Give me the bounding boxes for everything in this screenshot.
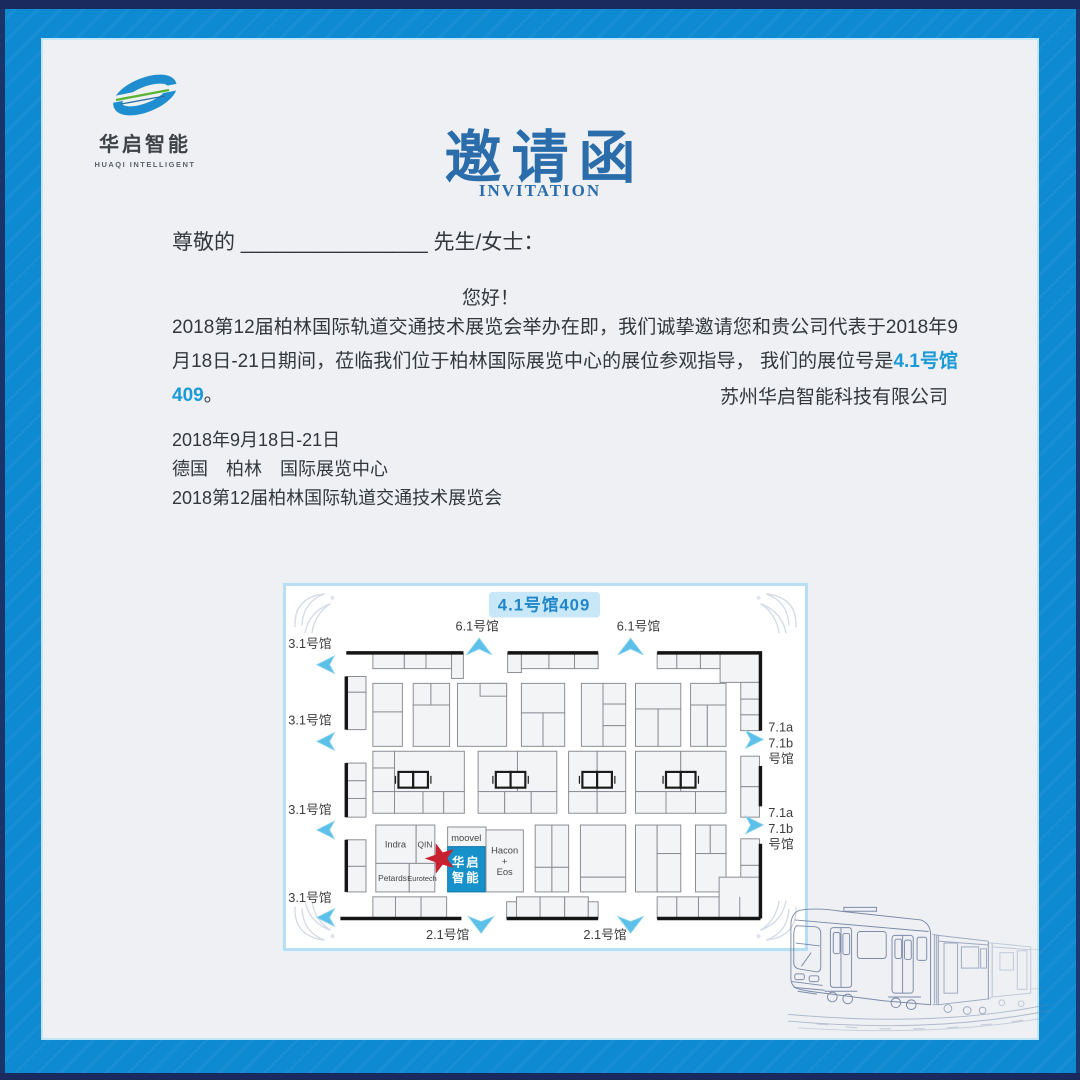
exhibitor-hacon-2: +	[502, 856, 507, 866]
arrow-left-icon	[317, 656, 335, 674]
exhibitor-eurotech: Eurotech	[407, 874, 436, 883]
hall-label-71-top-c: 号馆	[768, 751, 794, 766]
salutation-line: 尊敬的 ________________ 先生/女士：	[172, 226, 544, 256]
exhibitor-moovel: moovel	[451, 833, 481, 843]
arrow-left-icon	[317, 821, 335, 839]
hall-label-61-left: 6.1号馆	[455, 618, 498, 633]
exhibitor-hacon-1: Hacon	[491, 846, 518, 856]
arrow-right-icon	[746, 816, 764, 834]
frame-edge-bottom	[0, 1073, 1080, 1080]
event-name: 2018第12届柏林国际轨道交通技术展览会	[172, 484, 502, 513]
greeting-line: 您好！	[462, 283, 519, 310]
poster-frame: 华启智能 HUAQI INTELLIGENT 邀请函 INVITATION 尊敬…	[0, 0, 1080, 1080]
hall-label-21-left: 2.1号馆	[426, 927, 469, 942]
rails	[788, 1005, 1050, 1031]
name-blank: ________________	[241, 231, 428, 254]
exhibitor-petards: Petards	[378, 873, 407, 883]
frame-edge-left	[0, 0, 5, 1080]
invitation-card: 华启智能 HUAQI INTELLIGENT 邀请函 INVITATION 尊敬…	[43, 40, 1037, 1038]
event-location: 德国 柏林 国际展览中心	[172, 455, 502, 484]
exhibitor-qin: QIN	[418, 840, 433, 850]
hall-label-61-right: 6.1号馆	[617, 618, 660, 633]
hall-label-31-1: 3.1号馆	[288, 636, 331, 651]
arrow-up-icon	[466, 638, 492, 655]
page-subtitle: INVITATION	[43, 181, 1037, 201]
highlight-booth-line2: 智能	[451, 870, 481, 885]
salutation-suffix: 先生/女士：	[428, 231, 545, 254]
arrow-left-icon	[317, 733, 335, 751]
event-date: 2018年9月18日-21日	[172, 426, 502, 455]
hall-label-21-right: 2.1号馆	[583, 927, 626, 942]
frame-edge-right	[1076, 0, 1080, 1080]
hall-label-71-bot-a: 7.1a	[768, 805, 794, 820]
hall-label-71-top-a: 7.1a	[768, 720, 794, 735]
event-info: 2018年9月18日-21日 德国 柏林 国际展览中心 2018第12届柏林国际…	[172, 426, 502, 513]
hall-label-71-bot-c: 号馆	[768, 837, 794, 852]
train-sketch	[788, 880, 1050, 1035]
hall-label-71-bot-b: 7.1b	[768, 821, 793, 836]
floorplan-svg: 华启 智能 Indra QIN Petards Eurotech moovel …	[286, 586, 805, 948]
exhibitor-indra: Indra	[385, 840, 407, 850]
arrow-up-icon	[618, 638, 644, 655]
frame-edge-top	[0, 0, 1080, 9]
floorplan: 华启 智能 Indra QIN Petards Eurotech moovel …	[283, 583, 808, 951]
hall-label-31-4: 3.1号馆	[288, 890, 331, 905]
hall-label-31-3: 3.1号馆	[288, 802, 331, 817]
booth-number-badge-text: 4.1号馆409	[498, 595, 590, 615]
signature-company: 苏州华启智能科技有限公司	[172, 382, 958, 409]
salutation-prefix: 尊敬的	[172, 231, 241, 254]
hall-label-71-top-b: 7.1b	[768, 735, 793, 750]
train-rear-car	[988, 943, 1046, 1007]
highlight-booth-line1: 华启	[452, 854, 481, 869]
train-front-car	[791, 907, 931, 1009]
train-middle-car	[932, 934, 988, 1014]
hall-label-31-2: 3.1号馆	[288, 713, 331, 728]
arrow-right-icon	[746, 731, 764, 749]
exhibitor-hacon-3: Eos	[497, 867, 513, 877]
arrow-down-icon	[468, 917, 494, 934]
paragraph-text: 2018第12届柏林国际轨道交通技术展览会举办在即，我们诚挚邀请您和贵公司代表于…	[172, 317, 958, 372]
